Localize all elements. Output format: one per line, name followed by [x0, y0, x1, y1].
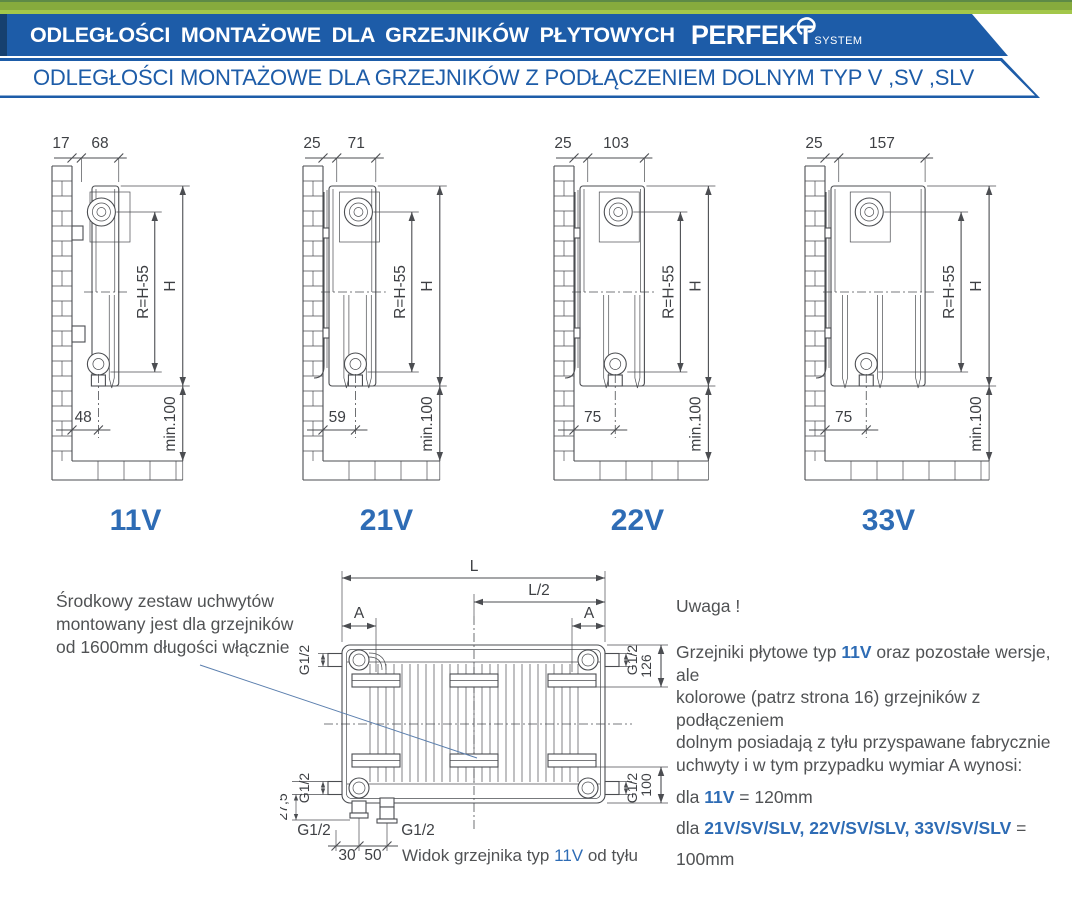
svg-text:A: A	[584, 605, 595, 622]
svg-text:G1/2: G1/2	[297, 822, 331, 839]
attention-paragraph: Grzejniki płytowe typ 11V oraz pozostałe…	[676, 641, 1072, 776]
svg-text:min.100: min.100	[162, 396, 179, 452]
svg-text:25: 25	[303, 135, 320, 152]
svg-text:157: 157	[869, 135, 895, 152]
top-green-bar	[0, 0, 1072, 14]
svg-text:R=H-55: R=H-55	[392, 265, 409, 319]
page-title: ODLEGŁOŚCI MONTAŻOWE DLA GRZEJNIKÓW PŁYT…	[0, 23, 675, 48]
type-label-11v: 11V	[10, 504, 261, 538]
svg-text:L: L	[470, 558, 479, 575]
svg-text:min.100: min.100	[419, 396, 436, 452]
header-banner: ODLEGŁOŚCI MONTAŻOWE DLA GRZEJNIKÓW PŁYT…	[0, 14, 1008, 56]
attention-heading: Uwaga !	[676, 596, 1072, 617]
svg-text:71: 71	[348, 135, 365, 152]
svg-text:H: H	[419, 280, 436, 291]
subtitle-banner: ODLEGŁOŚCI MONTAŻOWE DLA GRZEJNIKÓW Z PO…	[0, 61, 1035, 96]
logo-swoosh-icon	[795, 13, 819, 39]
svg-text:75: 75	[835, 409, 852, 426]
rear-view-caption: Widok grzejnika typ 11V od tyłu	[402, 846, 638, 866]
svg-text:30: 30	[338, 847, 356, 864]
dimension-a-11v: dla 11V = 120mm	[676, 782, 1072, 813]
svg-text:68: 68	[91, 135, 108, 152]
subtitle-text: ODLEGŁOŚCI MONTAŻOWE DLA GRZEJNIKÓW Z PO…	[0, 65, 974, 91]
side-diagram-33v: 25157R=H-55Hmin.10075 33V	[763, 128, 1014, 538]
svg-text:R=H-55: R=H-55	[135, 265, 152, 319]
logo-subtext: SYSTEM	[814, 35, 862, 47]
banner-left-edge	[0, 14, 7, 56]
svg-text:27,5: 27,5	[280, 793, 290, 820]
svg-text:A: A	[354, 605, 365, 622]
svg-text:R=H-55: R=H-55	[660, 265, 677, 319]
attention-note: Uwaga ! Grzejniki płytowe typ 11V oraz p…	[676, 596, 1072, 874]
side-diagram-22v: 25103R=H-55Hmin.10075 22V	[512, 128, 763, 538]
svg-text:103: 103	[603, 135, 629, 152]
type-ref: 11V	[704, 787, 734, 807]
side-diagram-svg-33v: 25157R=H-55Hmin.10075	[763, 128, 1014, 504]
perfekt-logo: PERFEKT SYSTEM	[691, 22, 863, 49]
side-diagram-21v: 2571R=H-55Hmin.10059 21V	[261, 128, 512, 538]
side-diagram-svg-11v: 1768R=H-55Hmin.10048	[10, 128, 261, 504]
type-label-21v: 21V	[261, 504, 512, 538]
side-diagrams-row: 1768R=H-55Hmin.10048 11V 2571R=H-55Hmin.…	[10, 128, 1014, 538]
svg-text:25: 25	[805, 135, 822, 152]
svg-text:50: 50	[364, 847, 382, 864]
type-ref: 11V	[841, 642, 871, 662]
svg-text:H: H	[968, 280, 985, 291]
side-diagram-11v: 1768R=H-55Hmin.10048 11V	[10, 128, 261, 538]
svg-text:min.100: min.100	[968, 396, 985, 452]
side-diagram-svg-21v: 2571R=H-55Hmin.10059	[261, 128, 512, 504]
svg-text:R=H-55: R=H-55	[941, 265, 958, 319]
svg-text:H: H	[687, 280, 704, 291]
svg-text:min.100: min.100	[687, 396, 704, 452]
svg-text:48: 48	[75, 409, 92, 426]
svg-text:G1/2: G1/2	[401, 822, 435, 839]
type-label-22v: 22V	[512, 504, 763, 538]
svg-text:25: 25	[554, 135, 571, 152]
dimension-a-others: dla 21V/SV/SLV, 22V/SV/SLV, 33V/SV/SLV =…	[676, 813, 1072, 874]
svg-text:17: 17	[52, 135, 69, 152]
side-diagram-svg-22v: 25103R=H-55Hmin.10075	[512, 128, 763, 504]
svg-text:59: 59	[329, 409, 346, 426]
svg-text:L/2: L/2	[528, 582, 550, 599]
type-ref: 21V/SV/SLV, 22V/SV/SLV, 33V/SV/SLV	[704, 818, 1011, 838]
svg-text:100: 100	[638, 773, 654, 797]
svg-text:75: 75	[584, 409, 601, 426]
type-label-33v: 33V	[763, 504, 1014, 538]
leader-line	[150, 640, 490, 770]
svg-text:126: 126	[638, 654, 654, 678]
type-ref: 11V	[554, 846, 583, 865]
svg-text:H: H	[162, 280, 179, 291]
svg-text:G1/2: G1/2	[296, 773, 312, 804]
